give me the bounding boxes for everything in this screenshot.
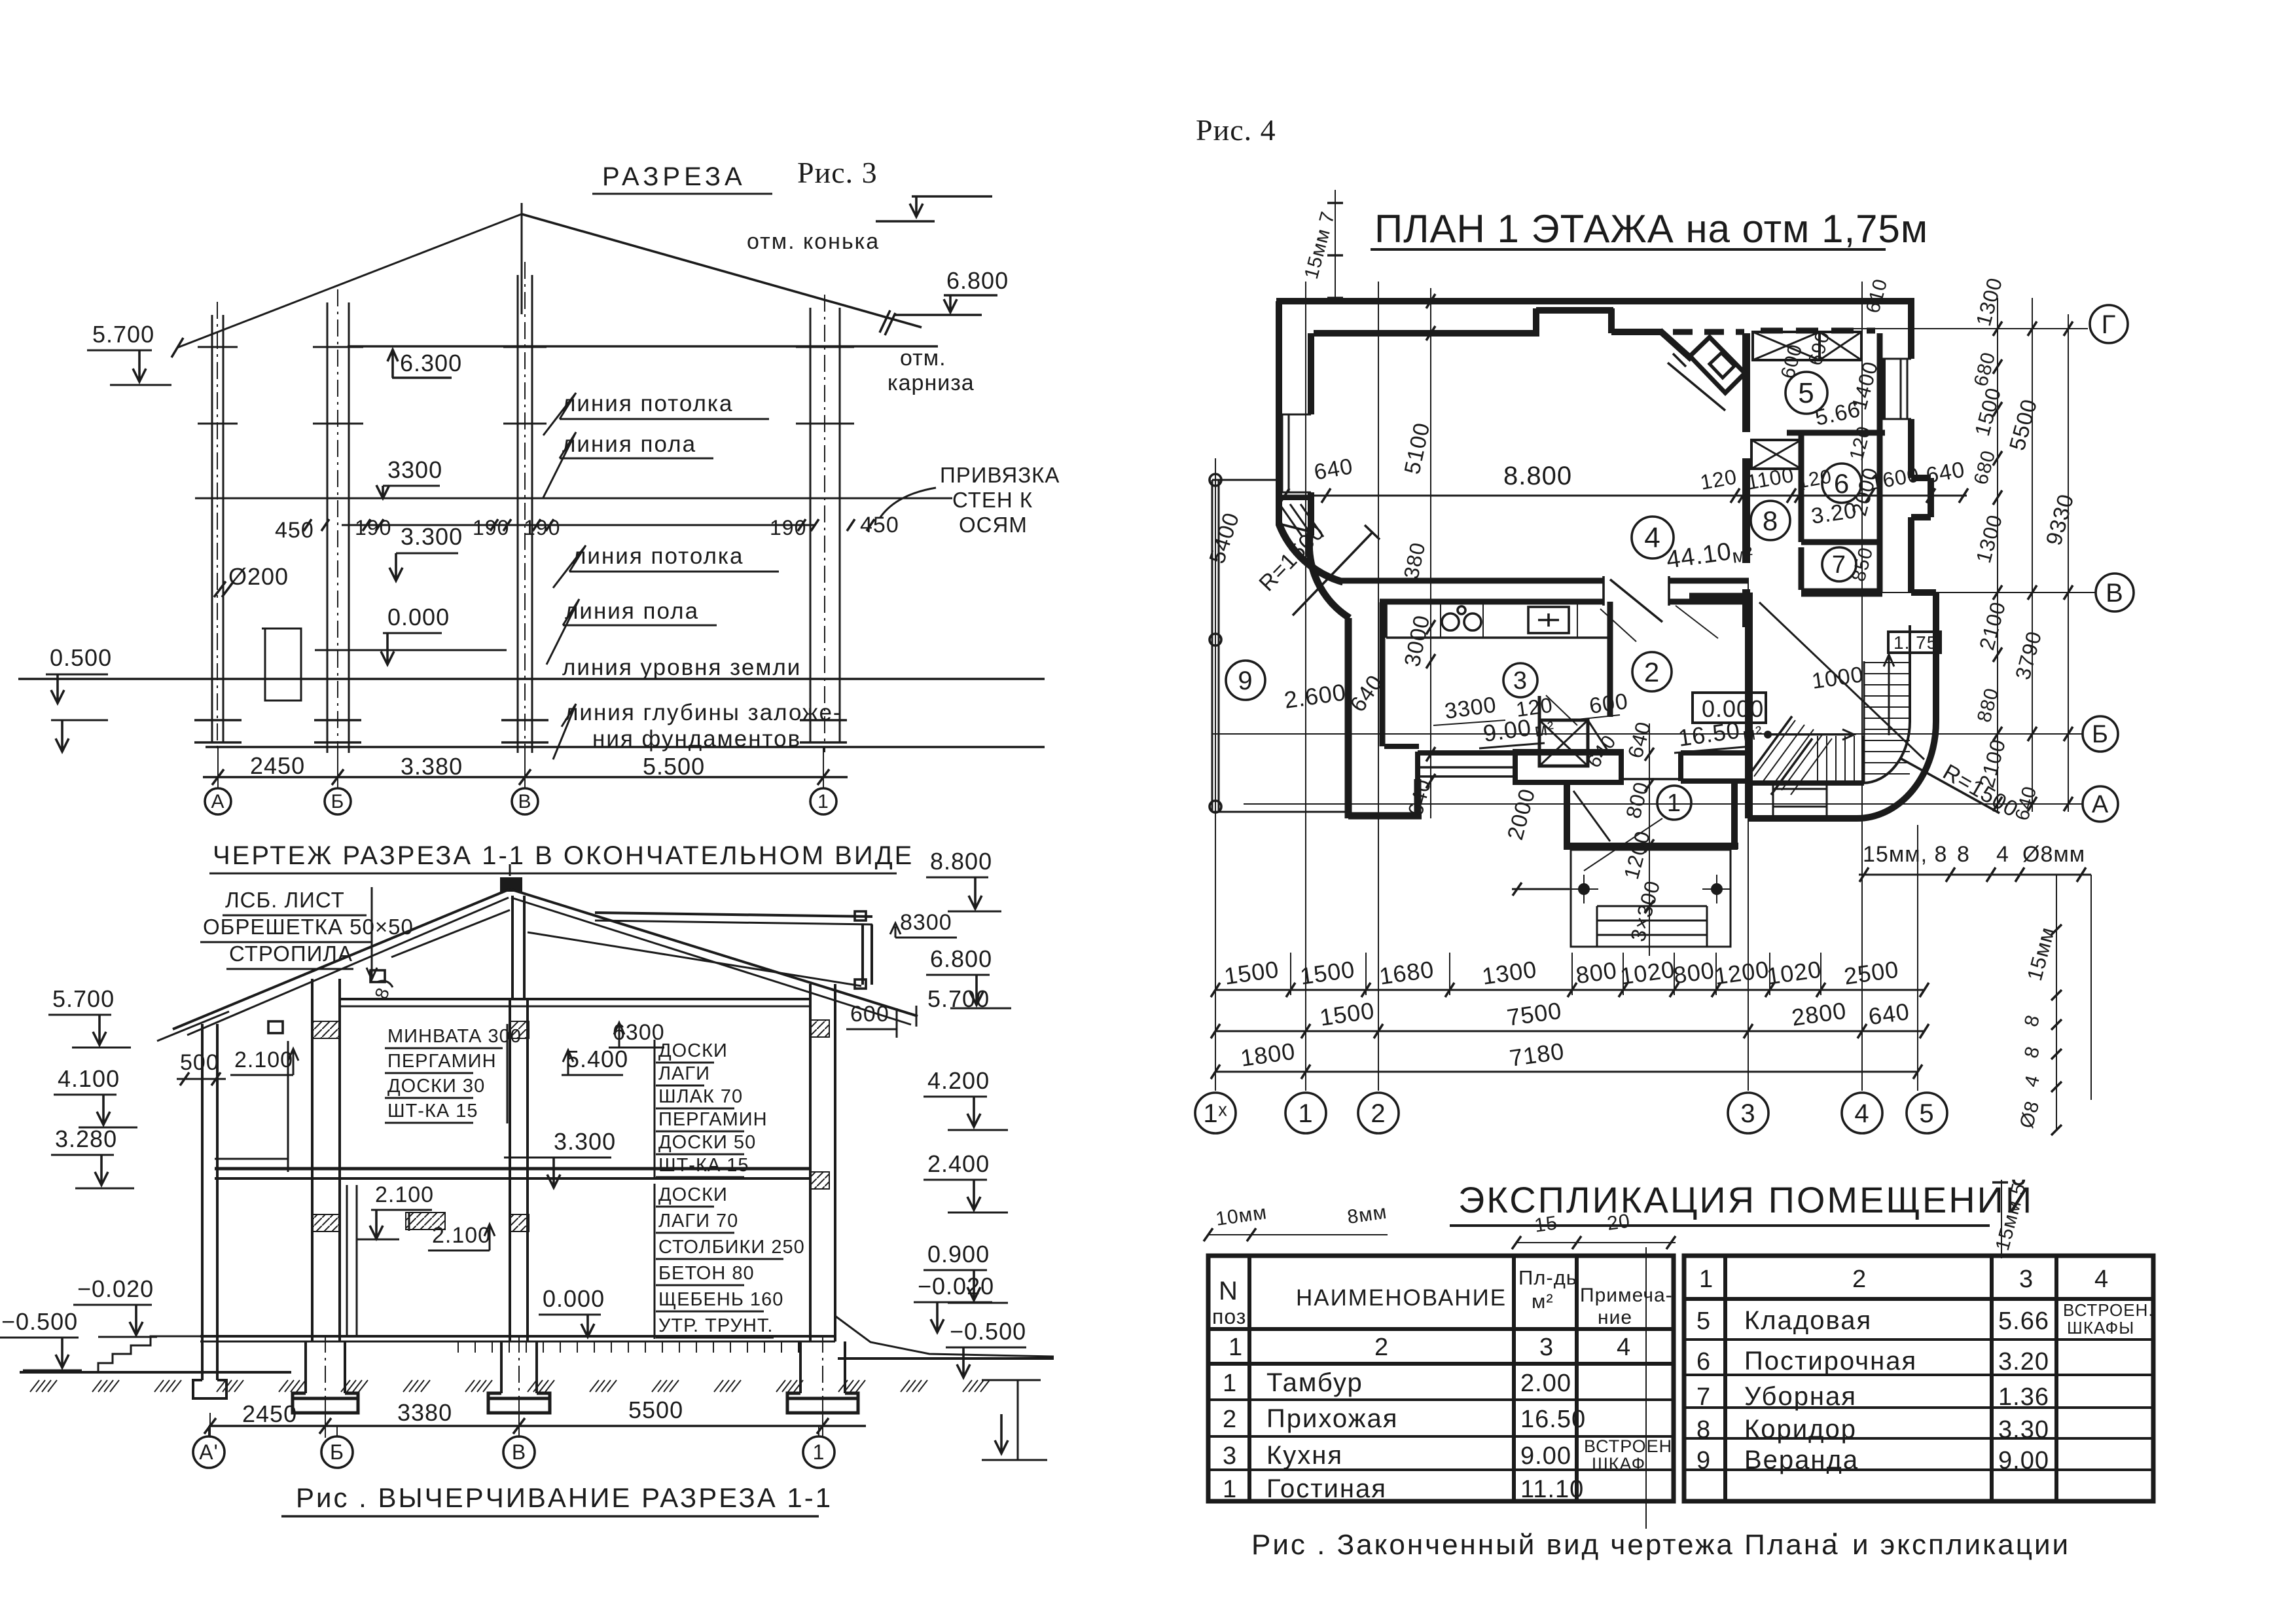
svg-text:Постирочная: Постирочная (1744, 1347, 1917, 1376)
svg-text:ЛАГИ: ЛАГИ (658, 1063, 710, 1084)
svg-text:СТРОПИЛА: СТРОПИЛА (229, 941, 353, 966)
svg-text:линия потолка: линия потолка (573, 543, 744, 569)
svg-text:Рис. 3: Рис. 3 (797, 156, 878, 189)
svg-text:ДОСКИ: ДОСКИ (658, 1040, 728, 1061)
svg-text:0.000: 0.000 (387, 604, 450, 630)
svg-text:4: 4 (1996, 842, 2009, 867)
svg-text:1: 1 (817, 791, 829, 812)
svg-text:Примеча-: Примеча- (1580, 1285, 1673, 1306)
svg-text:2: 2 (1371, 1099, 1386, 1128)
svg-text:линия глубины заложе-: линия глубины заложе- (565, 700, 842, 725)
svg-text:4.200: 4.200 (927, 1067, 990, 1094)
svg-text:−0.500: −0.500 (950, 1318, 1026, 1345)
svg-text:ШЛАК 70: ШЛАК 70 (658, 1086, 743, 1107)
svg-text:2: 2 (1223, 1406, 1237, 1433)
svg-text:ния фундаментов: ния фундаментов (592, 726, 801, 752)
svg-text:N: N (1219, 1277, 1238, 1305)
svg-text:м²: м² (1731, 543, 1755, 568)
svg-text:5: 5 (1919, 1099, 1934, 1128)
svg-text:1: 1 (813, 1440, 825, 1464)
svg-text:2.400: 2.400 (927, 1150, 990, 1177)
svg-text:Г: Г (2102, 310, 2117, 339)
svg-text:ШТ-КА 15: ШТ-КА 15 (658, 1155, 749, 1176)
svg-text:8: 8 (1957, 842, 1970, 867)
svg-text:2.100: 2.100 (375, 1182, 434, 1207)
svg-text:ВСТРОЕН.: ВСТРОЕН. (2063, 1300, 2154, 1320)
svg-text:9.00: 9.00 (1520, 1442, 1571, 1470)
svg-text:ЛАГИ 70: ЛАГИ 70 (658, 1211, 738, 1231)
svg-text:м²: м² (1532, 1290, 1554, 1313)
svg-text:МИНВАТА 300: МИНВАТА 300 (387, 1026, 522, 1047)
svg-text:6: 6 (1834, 468, 1850, 499)
svg-text:2.00: 2.00 (1520, 1370, 1571, 1397)
svg-text:2.100: 2.100 (432, 1223, 491, 1248)
svg-text:7: 7 (1832, 551, 1846, 579)
svg-text:0.000: 0.000 (543, 1285, 605, 1312)
svg-text:5.400: 5.400 (566, 1046, 628, 1072)
svg-text:отм.: отм. (900, 346, 946, 371)
svg-text:поз: поз (1212, 1305, 1246, 1328)
svg-text:3.300: 3.300 (554, 1128, 616, 1155)
svg-text:РАЗРЕЗА: РАЗРЕЗА (602, 162, 746, 191)
svg-text:Рис . Законченный вид черте: Рис . Законченный вид чертежа Плана (1251, 1529, 1840, 1561)
svg-text:3: 3 (2019, 1266, 2034, 1293)
svg-text:5: 5 (1798, 377, 1814, 409)
svg-text:8: 8 (1696, 1416, 1711, 1444)
svg-text:▪: ▪ (1833, 1527, 1838, 1542)
svg-text:450: 450 (860, 513, 899, 538)
svg-text:В: В (512, 1440, 526, 1464)
svg-text:3.20: 3.20 (1998, 1348, 2049, 1376)
svg-text:Веранда: Веранда (1744, 1446, 1859, 1474)
svg-text:А: А (2092, 791, 2109, 818)
svg-text:800: 800 (1574, 957, 1619, 989)
svg-text:4: 4 (2094, 1266, 2109, 1293)
svg-text:ПЕРГАМИН: ПЕРГАМИН (658, 1109, 768, 1130)
svg-text:6: 6 (1696, 1348, 1711, 1376)
svg-text:1: 1 (1229, 1334, 1243, 1361)
svg-text:1: 1 (1223, 1476, 1237, 1503)
svg-text:3: 3 (1740, 1099, 1755, 1128)
svg-text:В: В (2106, 579, 2124, 608)
svg-text:1. 75: 1. 75 (1893, 632, 1937, 653)
svg-text:линия уровня земли: линия уровня земли (562, 655, 801, 680)
svg-text:А': А' (199, 1440, 218, 1464)
svg-text:СТЕН К: СТЕН К (952, 488, 1033, 512)
svg-text:Рис . ВЫЧЕРЧИВAНИЕ РАЗРЕЗА: Рис . ВЫЧЕРЧИВAНИЕ РАЗРЕЗА 1-1 (296, 1482, 833, 1513)
svg-text:ОСЯМ: ОСЯМ (959, 513, 1028, 537)
svg-text:1: 1 (1298, 1099, 1313, 1128)
svg-text:ЩЕБЕНЬ 160: ЩЕБЕНЬ 160 (658, 1289, 783, 1310)
svg-text:190: 190 (524, 516, 560, 539)
svg-text:ЧЕРТЕЖ РАЗРЕЗА 1-1 В ОКОНЧАТЕЛ: ЧЕРТЕЖ РАЗРЕЗА 1-1 В ОКОНЧАТЕЛЬНОМ ВИДЕ (213, 841, 914, 870)
svg-text:ЛСБ. ЛИСТ: ЛСБ. ЛИСТ (225, 888, 345, 912)
svg-text:6.800: 6.800 (946, 267, 1009, 294)
svg-text:линия потолка: линия потолка (562, 391, 733, 416)
svg-text:5: 5 (1696, 1307, 1711, 1335)
svg-text:Б: Б (330, 1440, 344, 1464)
svg-text:4: 4 (1854, 1099, 1869, 1128)
svg-text:3.300: 3.300 (401, 523, 463, 550)
svg-text:500: 500 (180, 1050, 219, 1075)
svg-text:2450: 2450 (250, 752, 305, 779)
svg-text:9: 9 (1238, 666, 1253, 695)
svg-text:9.00: 9.00 (1998, 1447, 2049, 1474)
svg-text:Кладовая: Кладовая (1744, 1306, 1872, 1335)
svg-text:3300: 3300 (387, 456, 442, 483)
svg-text:−0.500: −0.500 (1, 1308, 78, 1335)
svg-text:ние: ние (1598, 1307, 1632, 1328)
svg-text:линия пола: линия пола (565, 598, 699, 624)
svg-text:ПЛАН 1 ЭТАЖА на отм 1,75м: ПЛАН 1 ЭТАЖА на отм 1,75м (1374, 207, 1928, 251)
svg-text:и экспликации: и экспликации (1852, 1529, 2070, 1561)
svg-text:4: 4 (1644, 522, 1660, 554)
svg-text:20: 20 (1605, 1210, 1632, 1235)
svg-text:3380: 3380 (397, 1399, 452, 1426)
svg-text:НАИМЕНОВАНИЕ: НАИМЕНОВАНИЕ (1296, 1285, 1507, 1311)
svg-text:6.800: 6.800 (930, 945, 992, 972)
svg-text:карниза: карниза (888, 371, 975, 395)
svg-text:Уборная: Уборная (1744, 1382, 1857, 1411)
svg-text:Ø8мм: Ø8мм (2022, 842, 2085, 867)
svg-text:450: 450 (275, 518, 314, 543)
svg-text:600: 600 (850, 1002, 889, 1027)
svg-text:Б: Б (2092, 721, 2109, 748)
svg-text:8: 8 (1763, 505, 1778, 536)
svg-text:линия пола: линия пола (562, 431, 696, 457)
svg-text:ПЕРГАМИН: ПЕРГАМИН (387, 1051, 497, 1072)
svg-text:8.800: 8.800 (930, 848, 992, 875)
svg-text:3.380: 3.380 (401, 753, 463, 780)
svg-text:Ø200: Ø200 (228, 563, 289, 590)
svg-text:ШКАФ: ШКАФ (1592, 1454, 1645, 1474)
svg-text:190: 190 (355, 516, 391, 539)
svg-text:2: 2 (1374, 1334, 1389, 1361)
svg-text:5.66: 5.66 (1998, 1307, 2049, 1335)
svg-text:11.10: 11.10 (1520, 1476, 1584, 1503)
svg-text:1: 1 (1699, 1266, 1713, 1293)
svg-text:3.280: 3.280 (55, 1125, 117, 1152)
svg-text:3: 3 (1539, 1334, 1554, 1361)
svg-text:5.700: 5.700 (52, 985, 115, 1012)
svg-text:ПРИВЯЗКА: ПРИВЯЗКА (940, 463, 1060, 487)
svg-text:1ˣ: 1ˣ (1203, 1099, 1227, 1128)
svg-text:м²: м² (1534, 718, 1556, 740)
svg-text:0.500: 0.500 (50, 644, 112, 671)
svg-text:1.36: 1.36 (1998, 1383, 2049, 1411)
svg-text:Гостиная: Гостиная (1266, 1474, 1387, 1503)
svg-text:2.100: 2.100 (234, 1048, 293, 1072)
svg-text:ШТ-КА 15: ШТ-КА 15 (387, 1101, 478, 1122)
svg-text:Рис. 4: Рис. 4 (1196, 113, 1276, 147)
svg-text:ШКАФЫ: ШКАФЫ (2067, 1318, 2134, 1338)
svg-text:Кухня: Кухня (1266, 1441, 1343, 1470)
svg-text:15: 15 (1533, 1212, 1559, 1237)
svg-text:2450: 2450 (242, 1400, 297, 1427)
svg-text:ДОСКИ 30: ДОСКИ 30 (387, 1076, 485, 1097)
svg-text:15мм, 8: 15мм, 8 (1863, 842, 1947, 867)
svg-text:В: В (518, 791, 531, 812)
svg-text:отм. конька: отм. конька (747, 229, 880, 254)
svg-text:1: 1 (1223, 1370, 1237, 1397)
svg-text:Тамбур: Тамбур (1266, 1368, 1363, 1397)
svg-text:9: 9 (1696, 1447, 1711, 1474)
svg-text:5500: 5500 (628, 1396, 683, 1423)
svg-text:−0.020: −0.020 (918, 1273, 994, 1300)
svg-text:ДОСКИ: ДОСКИ (658, 1184, 728, 1205)
svg-text:8.800: 8.800 (1503, 462, 1572, 490)
svg-text:2: 2 (1852, 1266, 1867, 1293)
svg-text:2: 2 (1644, 657, 1660, 687)
svg-text:800: 800 (1672, 957, 1716, 989)
svg-text:5.500: 5.500 (643, 753, 705, 780)
svg-text:16.50: 16.50 (1520, 1406, 1586, 1433)
svg-text:5.700: 5.700 (927, 985, 990, 1012)
svg-text:ВСТРОЕН.: ВСТРОЕН. (1584, 1436, 1678, 1456)
svg-text:4: 4 (1617, 1334, 1631, 1361)
svg-text:Пл-дь: Пл-дь (1518, 1266, 1577, 1289)
svg-text:7: 7 (1696, 1383, 1711, 1411)
svg-text:3: 3 (1223, 1442, 1237, 1470)
svg-text:0.900: 0.900 (927, 1241, 990, 1267)
svg-text:8300: 8300 (900, 910, 952, 935)
svg-text:ДОСКИ 50: ДОСКИ 50 (658, 1132, 756, 1153)
svg-text:640: 640 (1867, 998, 1911, 1030)
svg-text:Прихожая: Прихожая (1266, 1404, 1398, 1433)
svg-text:6.300: 6.300 (400, 350, 462, 376)
svg-text:УТР. ТРУНТ.: УТР. ТРУНТ. (658, 1315, 773, 1336)
svg-text:СТОЛБИКИ 250: СТОЛБИКИ 250 (658, 1237, 805, 1258)
svg-text:А: А (211, 791, 224, 812)
svg-text:5.700: 5.700 (92, 321, 154, 348)
svg-text:Б: Б (331, 791, 345, 812)
svg-text:БЕТОН 80: БЕТОН 80 (658, 1263, 755, 1284)
svg-text:3: 3 (1513, 667, 1528, 695)
svg-text:Коридор: Коридор (1744, 1415, 1857, 1444)
svg-text:ОБРЕШЕТКА 50×50: ОБРЕШЕТКА 50×50 (203, 915, 414, 939)
svg-text:3.30: 3.30 (1998, 1416, 2049, 1444)
svg-text:4.100: 4.100 (58, 1065, 120, 1092)
svg-text:−0.020: −0.020 (77, 1275, 154, 1302)
